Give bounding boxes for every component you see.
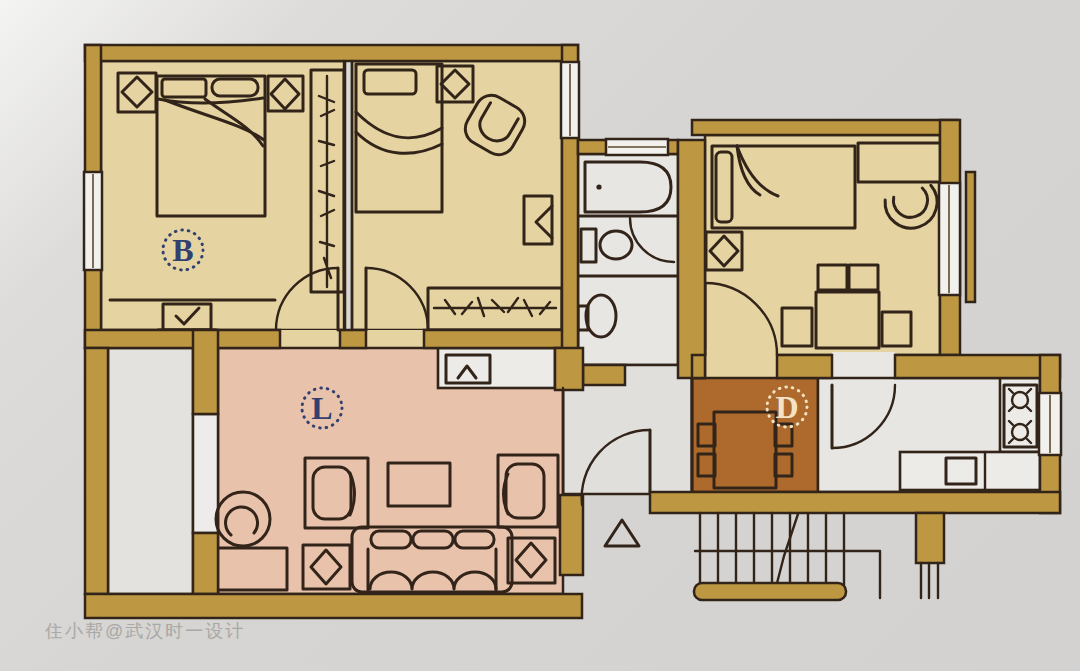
window-kitchen: [1039, 393, 1061, 455]
entry-marker: [605, 520, 639, 546]
floor-plan: B L D 住小帮@武汉时一设计: [0, 0, 1080, 671]
bedroom-label: B: [172, 232, 193, 268]
dining-label: D: [775, 389, 798, 425]
watermark: 住小帮@武汉时一设计: [44, 621, 245, 641]
door-gap-right: [705, 350, 777, 378]
window-bedroom-right: [939, 183, 960, 295]
stairs: [694, 513, 938, 600]
living-label: L: [311, 390, 332, 426]
balcony-opening: [193, 414, 218, 533]
door-gap-kitchen: [832, 352, 895, 378]
window-bedroom-b: [84, 172, 102, 270]
door-gap-2: [364, 330, 424, 348]
balcony-floor: [108, 348, 193, 594]
window-bedroom-2: [561, 62, 579, 138]
window-bathroom: [606, 139, 668, 155]
bedroom-divider: [344, 61, 352, 330]
stair-landing: [694, 583, 846, 600]
railing-posts: [921, 563, 938, 598]
door-gap-b: [280, 330, 340, 348]
